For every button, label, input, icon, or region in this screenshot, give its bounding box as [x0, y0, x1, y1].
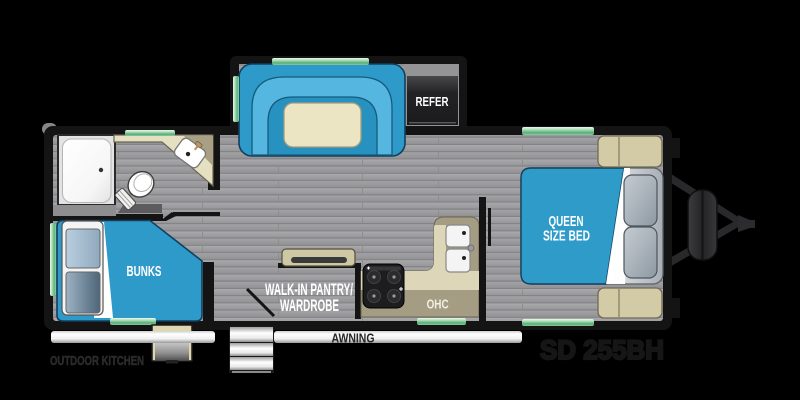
svg-text:REFER: REFER	[416, 95, 449, 109]
svg-text:BUNKS: BUNKS	[127, 263, 162, 280]
svg-text:WARDROBE: WARDROBE	[280, 297, 339, 315]
svg-text:SIZE BED: SIZE BED	[543, 228, 590, 245]
svg-text:OUTDOOR KITCHEN: OUTDOOR KITCHEN	[50, 354, 144, 368]
svg-text:AWNING: AWNING	[332, 332, 375, 346]
svg-text:OHC: OHC	[427, 297, 449, 312]
svg-text:SD 255BH: SD 255BH	[540, 335, 664, 365]
